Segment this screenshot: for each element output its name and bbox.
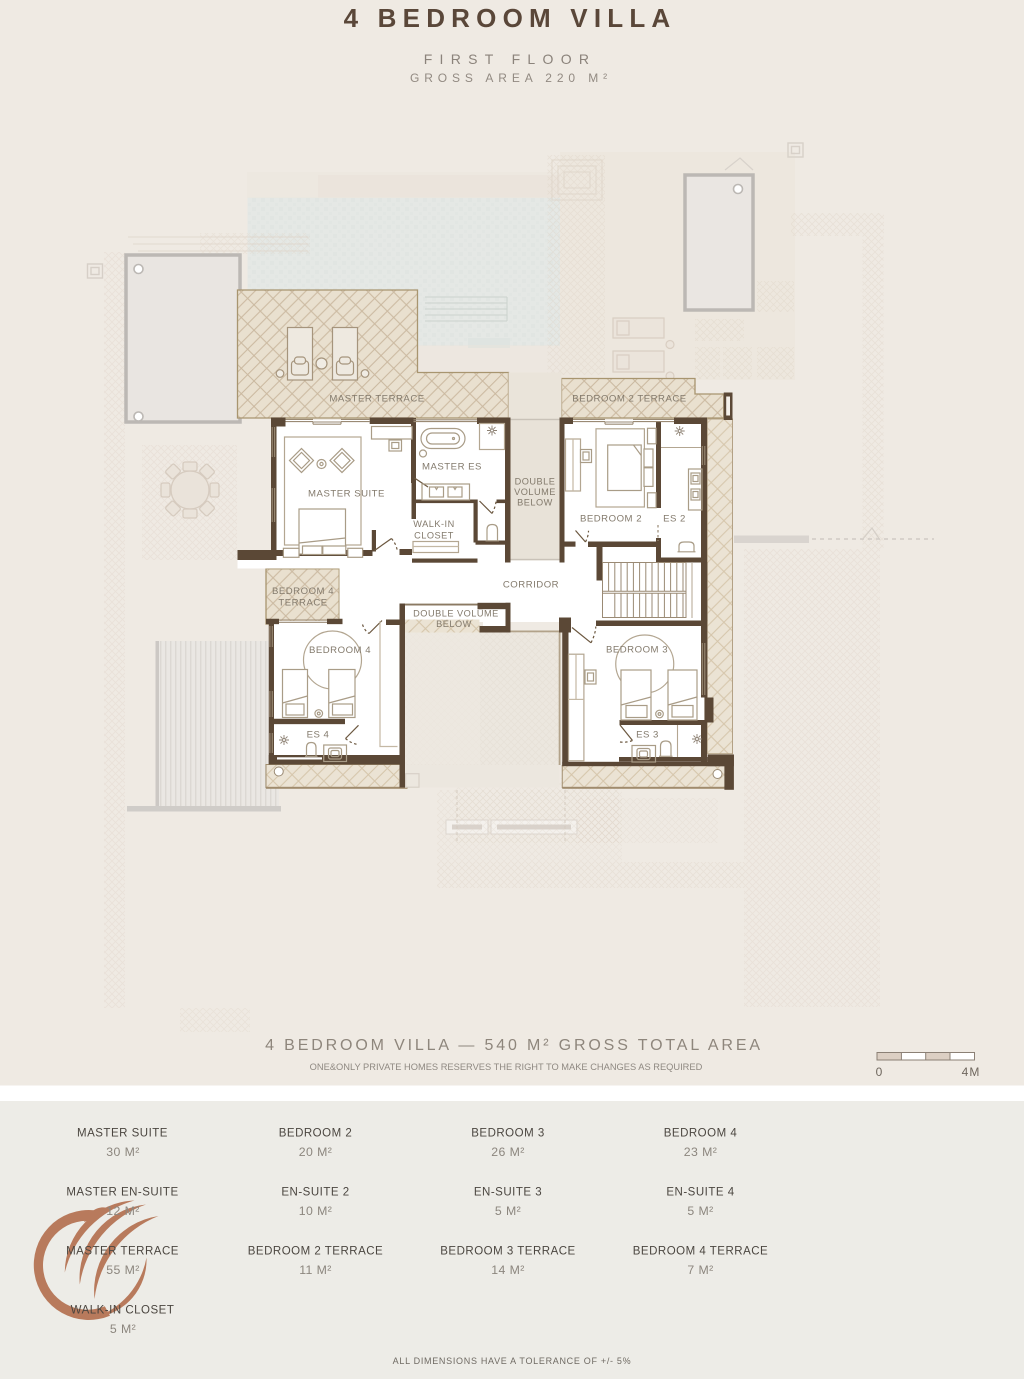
svg-text:20 M²: 20 M² <box>299 1145 332 1159</box>
svg-text:CLOSET: CLOSET <box>414 531 454 541</box>
svg-text:BEDROOM 2: BEDROOM 2 <box>580 514 642 525</box>
svg-text:5 M²: 5 M² <box>495 1204 521 1218</box>
svg-text:MASTER TERRACE: MASTER TERRACE <box>66 1246 179 1258</box>
svg-text:7 M²: 7 M² <box>687 1263 713 1277</box>
svg-text:MASTER ES: MASTER ES <box>422 462 482 473</box>
svg-text:BEDROOM 4: BEDROOM 4 <box>309 645 371 656</box>
svg-text:11 M²: 11 M² <box>299 1263 332 1277</box>
svg-text:4M: 4M <box>962 1065 981 1079</box>
svg-text:BELOW: BELOW <box>517 498 553 508</box>
svg-text:5 M²: 5 M² <box>110 1322 136 1336</box>
svg-text:BEDROOM 2: BEDROOM 2 <box>279 1128 353 1140</box>
svg-text:ONE&ONLY PRIVATE HOMES RESERVE: ONE&ONLY PRIVATE HOMES RESERVES THE RIGH… <box>310 1062 703 1072</box>
svg-text:DOUBLE: DOUBLE <box>515 477 556 487</box>
svg-text:BEDROOM 3 TERRACE: BEDROOM 3 TERRACE <box>440 1246 575 1258</box>
svg-text:BELOW: BELOW <box>436 619 472 629</box>
svg-text:ES 2: ES 2 <box>663 514 686 525</box>
svg-text:26 M²: 26 M² <box>491 1145 524 1159</box>
svg-text:BEDROOM 4: BEDROOM 4 <box>272 586 334 597</box>
svg-text:DOUBLE VOLUME: DOUBLE VOLUME <box>413 609 499 619</box>
svg-text:BEDROOM 4: BEDROOM 4 <box>664 1128 738 1140</box>
svg-text:MASTER SUITE: MASTER SUITE <box>77 1128 168 1140</box>
svg-text:ES 4: ES 4 <box>307 730 330 741</box>
svg-text:WALK-IN CLOSET: WALK-IN CLOSET <box>71 1305 175 1317</box>
svg-text:BEDROOM 4 TERRACE: BEDROOM 4 TERRACE <box>633 1246 768 1258</box>
svg-text:EN-SUITE 2: EN-SUITE 2 <box>281 1187 349 1199</box>
svg-text:ALL DIMENSIONS HAVE A TOLERANC: ALL DIMENSIONS HAVE A TOLERANCE OF +/- 5… <box>393 1356 632 1366</box>
svg-text:EN-SUITE 3: EN-SUITE 3 <box>474 1187 542 1199</box>
svg-text:MASTER SUITE: MASTER SUITE <box>308 489 385 500</box>
svg-text:MASTER EN-SUITE: MASTER EN-SUITE <box>66 1187 178 1199</box>
svg-text:ES 3: ES 3 <box>636 730 659 741</box>
svg-text:12 M²: 12 M² <box>106 1204 139 1218</box>
svg-text:FIRST FLOOR: FIRST FLOOR <box>424 51 597 67</box>
svg-text:VOLUME: VOLUME <box>514 487 556 497</box>
svg-text:55 M²: 55 M² <box>106 1263 139 1277</box>
svg-text:MASTER TERRACE: MASTER TERRACE <box>329 394 424 405</box>
svg-text:WALK-IN: WALK-IN <box>413 519 454 529</box>
svg-text:4 BEDROOM VILLA: 4 BEDROOM VILLA <box>344 3 677 33</box>
svg-text:GROSS AREA 220 M²: GROSS AREA 220 M² <box>410 71 612 85</box>
svg-text:BEDROOM 3: BEDROOM 3 <box>471 1128 545 1140</box>
svg-text:TERRACE: TERRACE <box>278 598 327 609</box>
svg-text:30 M²: 30 M² <box>106 1145 139 1159</box>
svg-text:BEDROOM 2 TERRACE: BEDROOM 2 TERRACE <box>572 394 686 405</box>
svg-text:4 BEDROOM VILLA — 540 M² GROSS: 4 BEDROOM VILLA — 540 M² GROSS TOTAL ARE… <box>265 1037 763 1054</box>
svg-text:23 M²: 23 M² <box>684 1145 717 1159</box>
svg-text:5 M²: 5 M² <box>687 1204 713 1218</box>
svg-text:14 M²: 14 M² <box>491 1263 524 1277</box>
svg-text:EN-SUITE 4: EN-SUITE 4 <box>666 1187 734 1199</box>
svg-text:BEDROOM 2 TERRACE: BEDROOM 2 TERRACE <box>248 1246 383 1258</box>
svg-text:BEDROOM 3: BEDROOM 3 <box>606 645 668 656</box>
svg-text:0: 0 <box>876 1065 883 1079</box>
svg-text:10 M²: 10 M² <box>299 1204 332 1218</box>
svg-text:CORRIDOR: CORRIDOR <box>503 580 559 591</box>
